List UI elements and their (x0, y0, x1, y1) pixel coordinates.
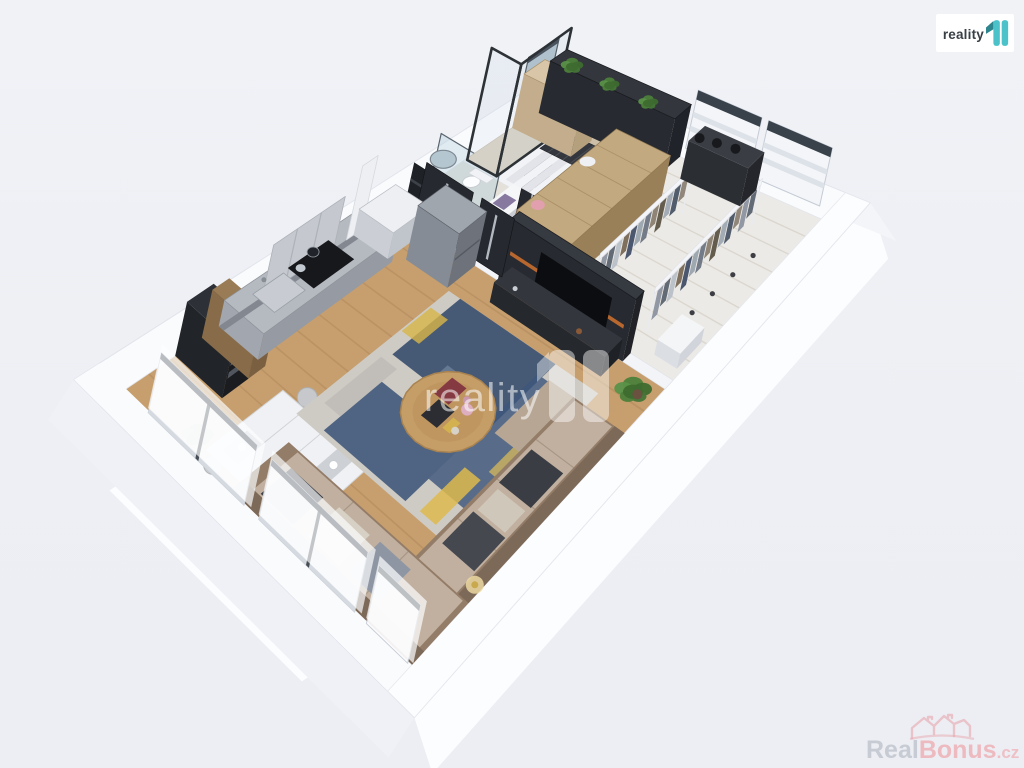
gym-dumbbells-3 (731, 144, 741, 154)
coffee-flowers-2 (463, 396, 471, 404)
closet-white-box (580, 157, 596, 167)
bath-mirror (430, 150, 456, 168)
tv-plant-pot (632, 389, 642, 399)
console-item-2 (576, 328, 582, 334)
coffee-flowers-1 (461, 404, 473, 416)
faucet (261, 277, 266, 282)
plate-3 (329, 461, 338, 470)
reality11-logo: reality (936, 14, 1014, 52)
entry-shelf-plant-2-leaf-6 (604, 82, 615, 90)
console-item-1 (513, 286, 518, 291)
floorplan-render (0, 0, 1024, 768)
closet-shoes-5 (751, 253, 756, 258)
closet-shoes-2 (690, 310, 695, 315)
pot-1 (296, 264, 306, 272)
logo-text: reality (943, 28, 984, 42)
pot-2 (307, 247, 319, 257)
coffee-deco (451, 427, 459, 435)
entry-shelf-plant-3-leaf-6 (643, 100, 654, 108)
closet-pink-box (531, 200, 545, 210)
gym-dumbbells-1 (695, 133, 705, 143)
closet-shoes-3 (710, 291, 715, 296)
entry-shelf-plant-1-leaf-6 (566, 63, 578, 72)
gym-dumbbells-2 (712, 138, 722, 148)
screenshot-root: reality reality RealBonus.cz (0, 0, 1024, 768)
closet-shoes-4 (730, 272, 735, 277)
floor-lamp (471, 581, 478, 588)
logo-11-icon (986, 17, 1010, 49)
